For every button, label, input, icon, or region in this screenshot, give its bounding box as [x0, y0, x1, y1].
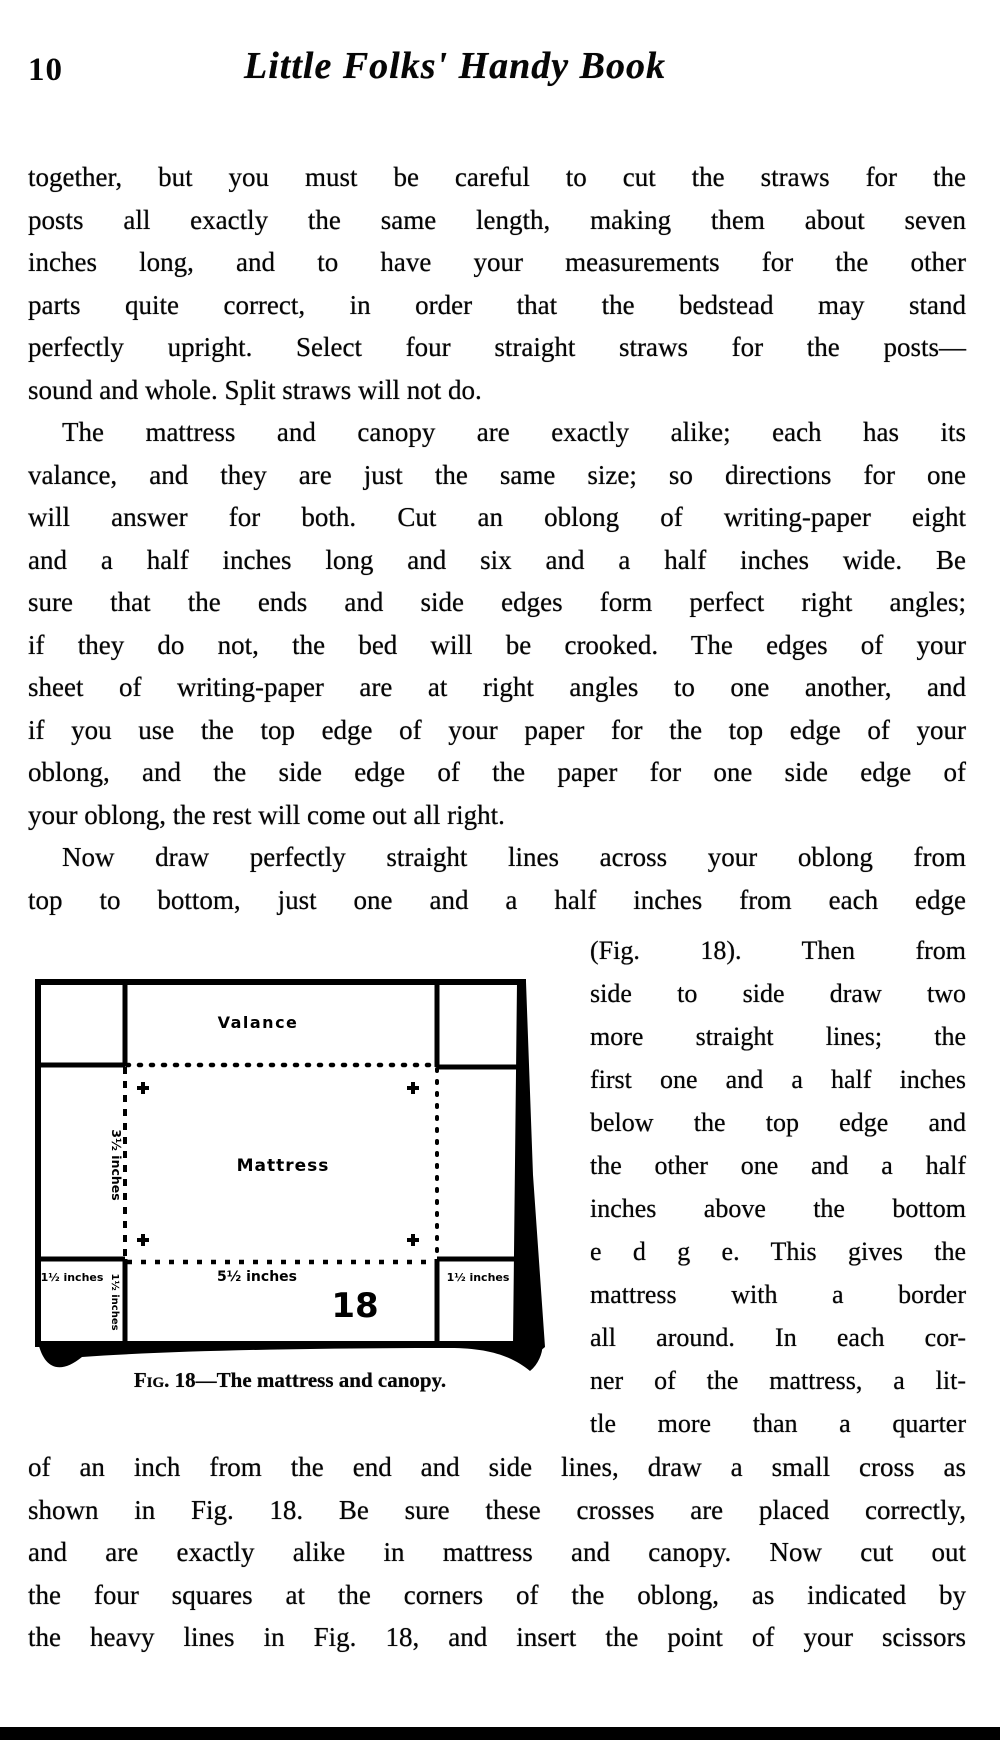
text-line: e d g e. This gives the [590, 1230, 966, 1273]
scan-ink-wedge [513, 982, 545, 1361]
text-line: side to side draw two [590, 972, 966, 1015]
figure-18-diagram: Valance Mattress 3½ inches 5½ inches 1½ … [30, 975, 550, 1375]
figure-caption: Fig. 18—The mattress and canopy. [30, 1368, 550, 1393]
text-line: valance, and they are just the same size… [28, 454, 966, 497]
text-line: sure that the ends and side edges form p… [28, 581, 966, 624]
text-line: together, but you must be careful to cut… [28, 156, 966, 199]
figure-caption-text: 18—The mattress and canopy. [169, 1368, 446, 1392]
text-line: the four squares at the corners of the o… [28, 1574, 966, 1617]
body-text-top: together, but you must be careful to cut… [28, 156, 966, 921]
text-line: below the top edge and [590, 1101, 966, 1144]
text-line: the other one and a half [590, 1144, 966, 1187]
text-line: top to bottom, just one and a half inche… [28, 879, 966, 922]
text-line: sheet of writing-paper are at right angl… [28, 666, 966, 709]
corner-dimension-bottom-right: 1½ inches [447, 1271, 510, 1284]
scan-ink-shadow [38, 1341, 543, 1371]
text-line: parts quite correct, in order that the b… [28, 284, 966, 327]
figure-number: 18 [331, 1286, 378, 1326]
text-line: perfectly upright. Select four straight … [28, 326, 966, 369]
text-line: the heavy lines in Fig. 18, and insert t… [28, 1616, 966, 1659]
text-line: Now draw perfectly straight lines across… [28, 836, 966, 879]
figure-caption-fig: Fig. [134, 1368, 170, 1392]
corner-dimension-bottom-left-vertical: 1½ inches [109, 1273, 120, 1330]
text-line: shown in Fig. 18. Be sure these crosses … [28, 1489, 966, 1532]
bottom-dimension-label: 5½ inches [217, 1269, 297, 1285]
text-line: tle more than a quarter [590, 1402, 966, 1445]
text-line: mattress with a border [590, 1273, 966, 1316]
text-line: all around. In each cor- [590, 1316, 966, 1359]
text-line: inches above the bottom [590, 1187, 966, 1230]
text-line: ner of the mattress, a lit- [590, 1359, 966, 1402]
text-line: oblong, and the side edge of the paper f… [28, 751, 966, 794]
text-line: more straight lines; the [590, 1015, 966, 1058]
left-dimension-label: 3½ inches [109, 1129, 124, 1200]
text-line: if they do not, the bed will be crooked.… [28, 624, 966, 667]
text-line: of an inch from the end and side lines, … [28, 1446, 966, 1489]
text-line: sound and whole. Split straws will not d… [28, 369, 966, 412]
text-line: inches long, and to have your measuremen… [28, 241, 966, 284]
text-line: (Fig. 18). Then from [590, 929, 966, 972]
text-line: The mattress and canopy are exactly alik… [28, 411, 966, 454]
valance-label: Valance [218, 1013, 299, 1032]
scan-edge-bar [0, 1727, 1000, 1740]
corner-dimension-bottom-left: 1½ inches [41, 1271, 104, 1284]
body-text-right-column: (Fig. 18). Then fromside to side draw tw… [590, 929, 966, 1445]
text-line: if you use the top edge of your paper fo… [28, 709, 966, 752]
book-title: Little Folks' Handy Book [130, 44, 780, 88]
text-line: first one and a half inches [590, 1058, 966, 1101]
body-text-bottom: of an inch from the end and side lines, … [28, 1446, 966, 1659]
mattress-label: Mattress [237, 1156, 330, 1176]
page-number: 10 [28, 52, 63, 89]
text-line: and are exactly alike in mattress and ca… [28, 1531, 966, 1574]
text-line: will answer for both. Cut an oblong of w… [28, 496, 966, 539]
text-line: posts all exactly the same length, makin… [28, 199, 966, 242]
text-line: and a half inches long and six and a hal… [28, 539, 966, 582]
book-page: 10 Little Folks' Handy Book together, bu… [0, 0, 1000, 1740]
text-line: your oblong, the rest will come out all … [28, 794, 966, 837]
